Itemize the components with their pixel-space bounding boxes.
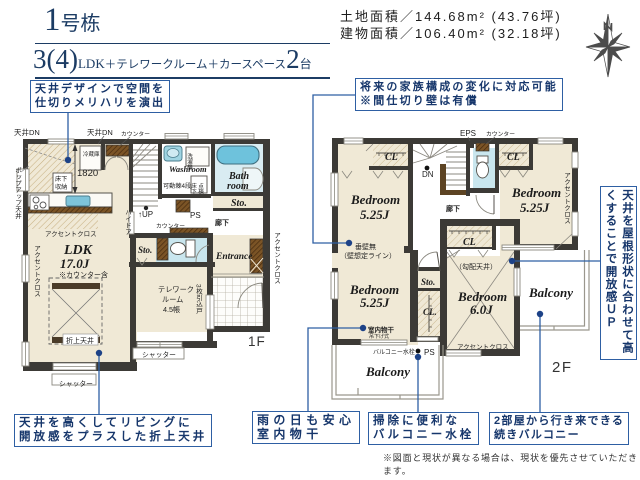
svg-text:Washroom: Washroom [169, 164, 207, 174]
svg-text:シャッター: シャッター [142, 350, 176, 359]
svg-text:可動棘4段: 可動棘4段 [163, 182, 191, 190]
svg-text:17.0J: 17.0J [60, 256, 90, 271]
svg-text:折上天井: 折上天井 [66, 336, 94, 345]
svg-text:Bedroom: Bedroom [350, 192, 400, 207]
svg-text:Balcony: Balcony [528, 285, 573, 300]
svg-text:シャッター: シャッター [59, 379, 93, 388]
svg-text:アクセントクロス: アクセントクロス [273, 232, 281, 284]
svg-text:DN: DN [422, 170, 434, 179]
svg-text:テレワーク: テレワーク [158, 285, 194, 294]
svg-text:4.5帳: 4.5帳 [163, 305, 180, 314]
svg-text:Entrance: Entrance [215, 252, 253, 262]
svg-text:廊下: 廊下 [446, 204, 460, 213]
svg-text:床下: 床下 [55, 175, 67, 183]
svg-text:冷蔵庫: 冷蔵庫 [83, 150, 100, 158]
svg-text:EPS: EPS [460, 129, 476, 138]
svg-text:廊下: 廊下 [215, 218, 229, 227]
svg-text:2F: 2F [552, 359, 573, 376]
svg-text:（勾配天井）: （勾配天井） [455, 262, 497, 271]
svg-text:CL.: CL. [423, 307, 437, 317]
svg-text:Bedroom: Bedroom [511, 185, 561, 200]
svg-text:点検: 点検 [197, 183, 204, 196]
svg-text:Balcony: Balcony [365, 364, 410, 379]
svg-text:アクセントクロス: アクセントクロス [45, 230, 97, 238]
svg-text:Sto.: Sto. [138, 245, 152, 255]
svg-text:Sto.: Sto. [421, 277, 435, 287]
svg-text:カウンター: カウンター [486, 130, 515, 138]
svg-text:天井DN: 天井DN [87, 127, 113, 137]
svg-text:PS: PS [190, 211, 201, 220]
svg-text:5.25J: 5.25J [360, 207, 390, 222]
svg-text:垂壁無: 垂壁無 [355, 242, 376, 251]
svg-text:1F: 1F [248, 334, 266, 349]
svg-text:バルコニー水栓: バルコニー水栓 [373, 348, 415, 356]
svg-text:（壁想定ライン）: （壁想定ライン） [340, 251, 396, 260]
svg-text:カウンター: カウンター [156, 222, 185, 230]
svg-text:5.25J: 5.25J [360, 295, 390, 310]
svg-text:床下: 床下 [190, 182, 197, 196]
svg-text:PS: PS [424, 348, 435, 357]
svg-text:収納: 収納 [55, 183, 67, 191]
svg-text:5.25J: 5.25J [520, 200, 550, 215]
svg-text:6.0J: 6.0J [470, 302, 493, 317]
svg-text:カウンター: カウンター [121, 130, 150, 138]
svg-text:CL: CL [385, 152, 398, 163]
svg-text:CL: CL [463, 237, 476, 248]
svg-text:天井DN: 天井DN [14, 127, 40, 137]
svg-text:↑UP: ↑UP [138, 210, 153, 219]
svg-text:CL: CL [507, 152, 520, 163]
svg-text:Sto.: Sto. [231, 198, 247, 209]
svg-text:※カウンター含: ※カウンター含 [59, 270, 108, 279]
svg-text:ルーム: ルーム [162, 295, 183, 304]
svg-text:吊下げ式: 吊下げ式 [369, 333, 389, 340]
svg-text:1820: 1820 [77, 168, 98, 179]
svg-text:アクセントクロス: アクセントクロス [457, 343, 509, 351]
svg-text:室内物干: 室内物干 [368, 325, 395, 334]
svg-text:room: room [227, 181, 249, 192]
